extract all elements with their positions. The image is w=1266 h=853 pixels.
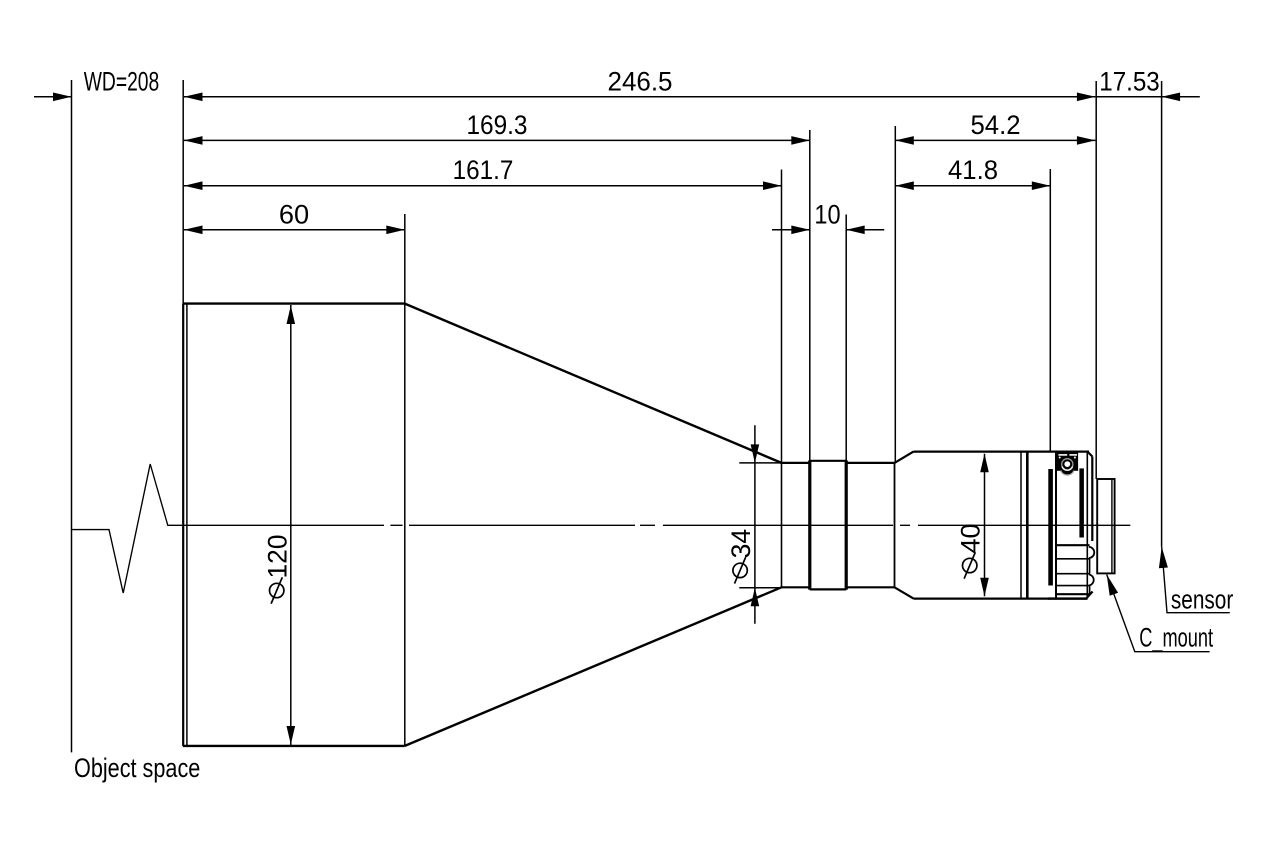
svg-text:Object space: Object space <box>74 753 200 783</box>
svg-text:C_mount: C_mount <box>1139 622 1213 652</box>
svg-text:41.8: 41.8 <box>948 155 998 185</box>
svg-text:161.7: 161.7 <box>453 155 514 185</box>
svg-text:60: 60 <box>279 199 309 229</box>
svg-text:10: 10 <box>814 199 840 229</box>
svg-text:120: 120 <box>263 535 293 579</box>
svg-text:54.2: 54.2 <box>971 110 1021 140</box>
svg-text:17.53: 17.53 <box>1099 66 1160 96</box>
svg-text:169.3: 169.3 <box>467 110 528 140</box>
svg-text:sensor: sensor <box>1171 584 1233 614</box>
svg-text:40: 40 <box>956 524 986 554</box>
svg-text:WD=208: WD=208 <box>84 66 160 96</box>
svg-text:246.5: 246.5 <box>608 66 673 96</box>
svg-text:34: 34 <box>726 529 756 559</box>
